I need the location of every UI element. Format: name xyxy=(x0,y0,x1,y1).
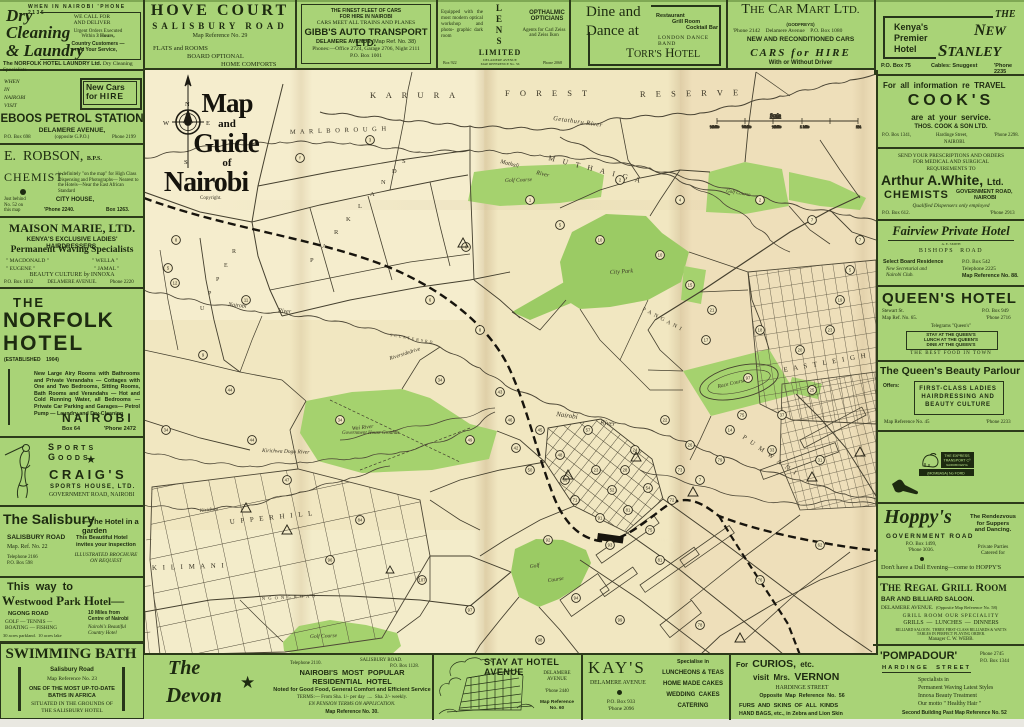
svg-text:26: 26 xyxy=(688,443,693,448)
svg-text:91: 91 xyxy=(598,516,603,521)
svg-text:TRANSPORT Cº: TRANSPORT Cº xyxy=(944,459,972,463)
svg-text:57: 57 xyxy=(586,428,591,433)
svg-text:¾Mile: ¾Mile xyxy=(772,125,781,129)
svg-text:W: W xyxy=(163,120,170,127)
svg-text:34: 34 xyxy=(164,428,169,433)
svg-text:½Mile: ½Mile xyxy=(742,125,751,129)
svg-text:D: D xyxy=(392,168,397,175)
svg-text:S: S xyxy=(402,158,406,165)
svg-text:17: 17 xyxy=(704,338,709,343)
svg-text:U: U xyxy=(200,306,205,312)
svg-text:98: 98 xyxy=(538,638,543,643)
svg-text:44: 44 xyxy=(228,388,233,393)
svg-text:10: 10 xyxy=(598,238,603,243)
svg-text:¼Mile: ¼Mile xyxy=(710,125,719,129)
svg-text:62: 62 xyxy=(818,543,823,548)
svg-text:92: 92 xyxy=(546,538,551,543)
svg-text:84: 84 xyxy=(358,518,363,523)
svg-text:L: L xyxy=(358,203,362,210)
svg-text:107: 107 xyxy=(419,578,427,583)
svg-text:Nairobi: Nairobi xyxy=(164,167,249,198)
svg-text:75: 75 xyxy=(740,413,745,418)
svg-text:31: 31 xyxy=(818,458,823,463)
svg-text:18: 18 xyxy=(758,328,763,333)
svg-text:97: 97 xyxy=(468,608,473,613)
svg-text:43: 43 xyxy=(498,390,503,395)
svg-text:46: 46 xyxy=(508,418,513,423)
svg-text:45: 45 xyxy=(538,428,543,433)
svg-text:K A R U R A: K A R U R A xyxy=(370,90,459,100)
svg-text:Government House Grounds: Government House Grounds xyxy=(342,431,399,436)
svg-text:11: 11 xyxy=(244,298,249,303)
svg-text:Guide: Guide xyxy=(193,128,260,158)
svg-text:R: R xyxy=(334,229,339,236)
svg-text:47: 47 xyxy=(285,478,290,483)
svg-text:P: P xyxy=(310,257,314,264)
svg-text:S: S xyxy=(184,159,188,166)
svg-text:23: 23 xyxy=(828,328,833,333)
svg-text:15: 15 xyxy=(688,283,693,288)
svg-text:96: 96 xyxy=(328,558,333,563)
svg-text:99: 99 xyxy=(618,618,623,623)
svg-text:78: 78 xyxy=(698,623,703,628)
svg-text:48: 48 xyxy=(558,453,563,458)
svg-text:24: 24 xyxy=(633,448,638,453)
svg-text:K: K xyxy=(346,216,351,223)
svg-text:34: 34 xyxy=(438,378,443,383)
svg-text:52: 52 xyxy=(610,488,615,493)
svg-text:81: 81 xyxy=(626,508,631,513)
svg-text:54: 54 xyxy=(646,486,651,491)
svg-text:23: 23 xyxy=(594,468,599,473)
svg-text:21: 21 xyxy=(710,308,715,313)
svg-text:NAIROBI KENYA: NAIROBI KENYA xyxy=(946,463,968,467)
svg-text:1¼: 1¼ xyxy=(856,125,861,129)
svg-text:Golf Course: Golf Course xyxy=(505,176,533,184)
svg-text:10: 10 xyxy=(658,253,663,258)
svg-text:44: 44 xyxy=(250,438,255,443)
svg-text:37: 37 xyxy=(780,413,785,418)
svg-text:93: 93 xyxy=(608,543,613,548)
svg-text:E: E xyxy=(206,120,210,127)
svg-text:20: 20 xyxy=(798,348,803,353)
svg-text:1 Mile: 1 Mile xyxy=(800,125,809,129)
svg-text:N: N xyxy=(381,179,386,186)
svg-text:Scale: Scale xyxy=(770,114,782,119)
svg-text:22: 22 xyxy=(663,418,668,423)
svg-text:33: 33 xyxy=(770,448,775,453)
svg-text:49: 49 xyxy=(468,438,473,443)
svg-text:A: A xyxy=(322,243,327,250)
svg-text:A: A xyxy=(370,191,375,198)
svg-text:75: 75 xyxy=(648,528,653,533)
svg-text:42: 42 xyxy=(514,446,519,451)
svg-text:Map: Map xyxy=(202,88,253,118)
svg-text:E: E xyxy=(224,263,228,269)
svg-text:F O R E S T: F O R E S T xyxy=(505,88,591,98)
svg-text:19: 19 xyxy=(838,298,843,303)
svg-text:34: 34 xyxy=(338,418,343,423)
svg-text:71: 71 xyxy=(573,498,578,503)
svg-text:R E S E R V E: R E S E R V E xyxy=(640,87,742,99)
svg-text:76: 76 xyxy=(758,578,763,583)
svg-text:14: 14 xyxy=(728,428,733,433)
svg-text:94: 94 xyxy=(574,596,579,601)
svg-text:12: 12 xyxy=(173,281,178,286)
svg-text:97: 97 xyxy=(746,376,751,381)
svg-text:72: 72 xyxy=(670,498,675,503)
svg-text:(MOMBASA) No FORD: (MOMBASA) No FORD xyxy=(927,472,965,476)
svg-text:28: 28 xyxy=(623,468,628,473)
svg-text:50: 50 xyxy=(528,468,533,473)
svg-text:N: N xyxy=(185,101,190,108)
svg-text:THE EXPRESS: THE EXPRESS xyxy=(944,454,970,458)
svg-text:R: R xyxy=(232,249,236,255)
svg-text:81: 81 xyxy=(658,558,663,563)
svg-text:Golf Course: Golf Course xyxy=(310,632,338,640)
svg-text:79: 79 xyxy=(718,458,723,463)
svg-text:25: 25 xyxy=(810,388,815,393)
svg-text:73: 73 xyxy=(678,468,683,473)
